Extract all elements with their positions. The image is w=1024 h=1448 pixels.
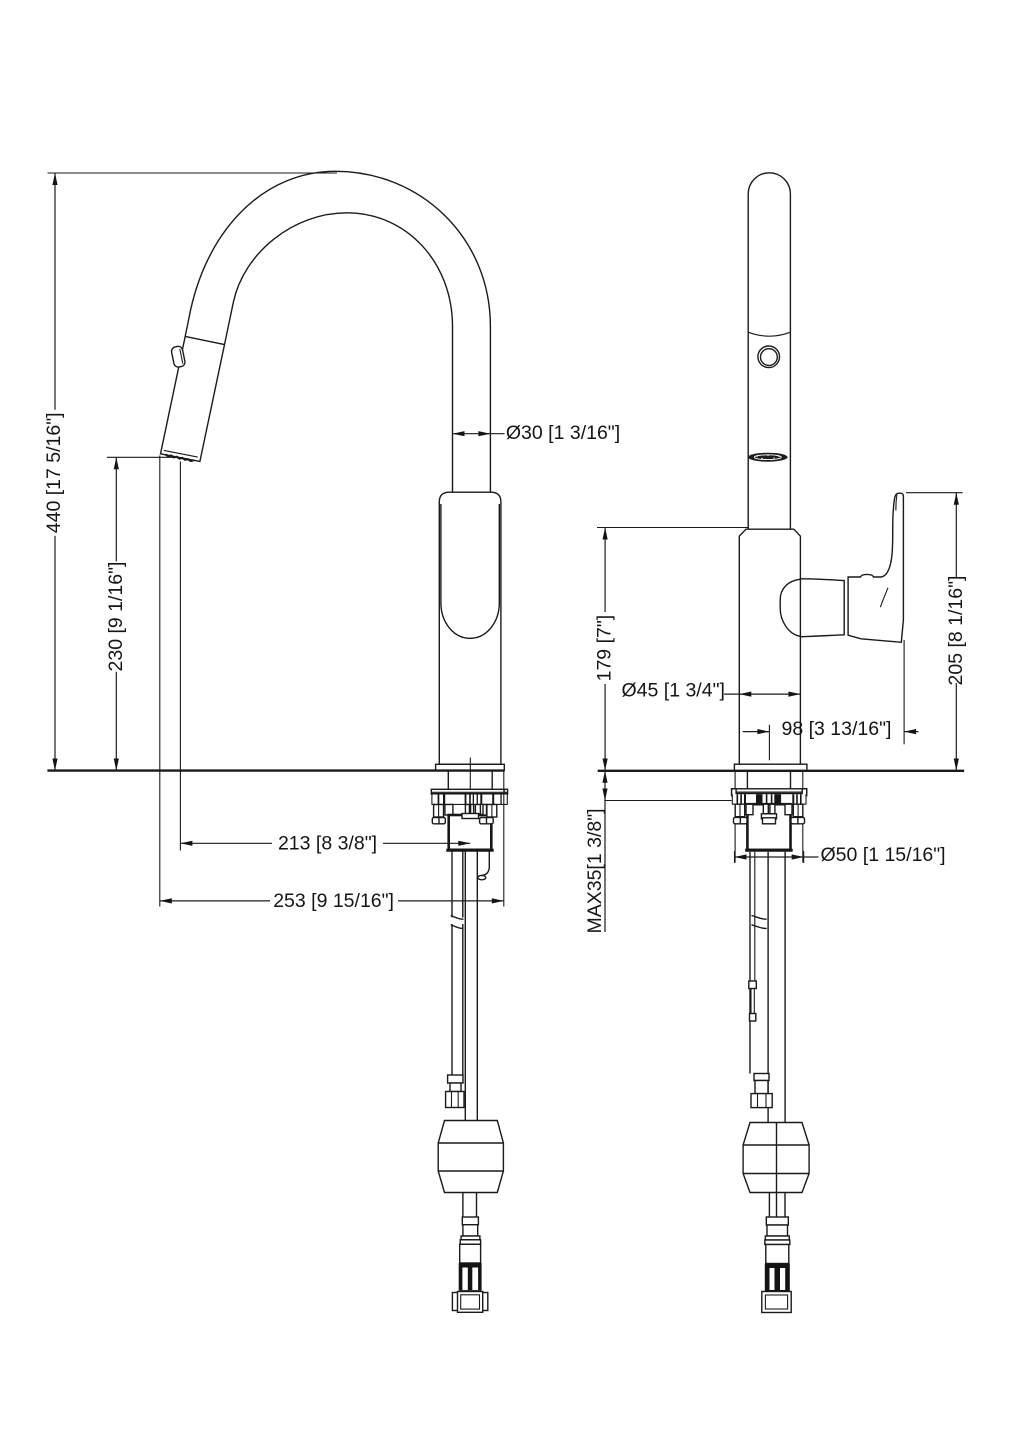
svg-text:MAX35[1 3/8"]: MAX35[1 3/8"] bbox=[584, 808, 606, 933]
svg-text:253 [9 15/16"]: 253 [9 15/16"] bbox=[273, 890, 394, 912]
svg-text:213 [8 3/8"]: 213 [8 3/8"] bbox=[278, 833, 377, 855]
svg-text:179 [7"]: 179 [7"] bbox=[593, 615, 615, 682]
svg-text:230 [9 1/16"]: 230 [9 1/16"] bbox=[105, 562, 127, 672]
svg-text:205 [8 1/16"]: 205 [8 1/16"] bbox=[945, 576, 967, 686]
svg-text:Ø50 [1 15/16"]: Ø50 [1 15/16"] bbox=[821, 844, 946, 866]
svg-text:Ø45 [1 3/4"]: Ø45 [1 3/4"] bbox=[622, 680, 725, 702]
svg-text:440 [17 5/16"]: 440 [17 5/16"] bbox=[43, 412, 65, 533]
svg-text:98 [3 13/16"]: 98 [3 13/16"] bbox=[782, 718, 892, 740]
svg-text:Ø30 [1 3/16"]: Ø30 [1 3/16"] bbox=[506, 422, 620, 444]
